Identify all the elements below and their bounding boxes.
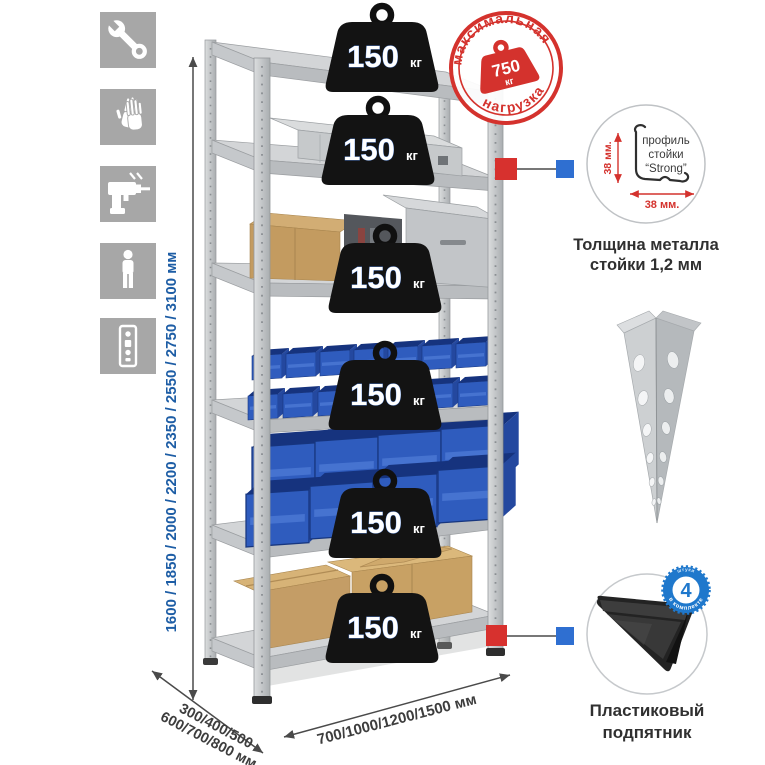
included-count: 4	[680, 580, 692, 602]
height-dimension: 1600 / 1850 / 2000 / 2200 / 2350 / 2550 …	[163, 57, 193, 700]
icon-tile-person	[100, 243, 156, 299]
connector-top	[495, 158, 574, 180]
svg-text:кг: кг	[410, 55, 423, 70]
height-dimension-label: 1600 / 1850 / 2000 / 2200 / 2350 / 2550 …	[163, 252, 180, 633]
depth-dimension: 300/400/500 600/700/800 мм	[152, 671, 267, 765]
svg-text:кг: кг	[413, 521, 426, 536]
foot-callout: 4 штуки в комплекте Пластиковый подпятни…	[587, 567, 710, 743]
profile-caption-1: Толщина металла	[573, 236, 719, 254]
profile-dim-vertical: 38 мм.	[602, 141, 614, 174]
profile-caption-2: стойки 1,2 мм	[590, 256, 702, 274]
width-dimension: 700/1000/1200/1500 мм	[284, 675, 510, 748]
svg-text:150: 150	[347, 39, 399, 74]
svg-text:150: 150	[350, 505, 402, 540]
foot-caption-1: Пластиковый	[590, 701, 705, 720]
svg-text:150: 150	[350, 377, 402, 412]
icon-tile-profile	[100, 318, 156, 374]
product-infographic: 1600 / 1850 / 2000 / 2200 / 2350 / 2550 …	[0, 0, 765, 765]
connector-top-red-marker	[495, 158, 517, 180]
profile-label-2: стойки	[648, 149, 683, 161]
icon-tile-drill	[100, 166, 156, 222]
svg-text:кг: кг	[413, 393, 426, 408]
connector-top-blue-marker	[556, 160, 574, 178]
svg-text:150: 150	[347, 610, 399, 645]
profile-dim-horizontal: 38 мм.	[645, 199, 680, 211]
corner-post-image	[617, 311, 701, 523]
rack-rear-left-post	[205, 40, 216, 664]
connector-bottom-blue-marker	[556, 627, 574, 645]
connector-bottom-red-marker	[486, 625, 507, 646]
width-dimension-label: 700/1000/1200/1500 мм	[315, 691, 478, 749]
left-icon-rail	[100, 12, 156, 374]
foot-caption-2: подпятник	[603, 723, 692, 742]
profile-callout: 38 мм. 38 мм. профиль стойки “Strong” То…	[573, 105, 719, 274]
icon-tile-gloves	[100, 89, 156, 145]
connector-bottom	[486, 625, 574, 646]
load-badge-2: 150 кг	[322, 99, 435, 185]
svg-text:кг: кг	[410, 626, 423, 641]
max-load-stamp: максимальная нагрузка 750 кг	[439, 0, 573, 135]
icon-tile-wrench	[100, 12, 156, 68]
load-badge-1: 150 кг	[326, 6, 439, 92]
profile-label-3: “Strong”	[645, 163, 687, 175]
profile-label-1: профиль	[642, 135, 690, 147]
svg-text:кг: кг	[406, 148, 419, 163]
svg-text:150: 150	[350, 260, 402, 295]
svg-text:150: 150	[343, 132, 395, 167]
svg-text:кг: кг	[413, 276, 426, 291]
